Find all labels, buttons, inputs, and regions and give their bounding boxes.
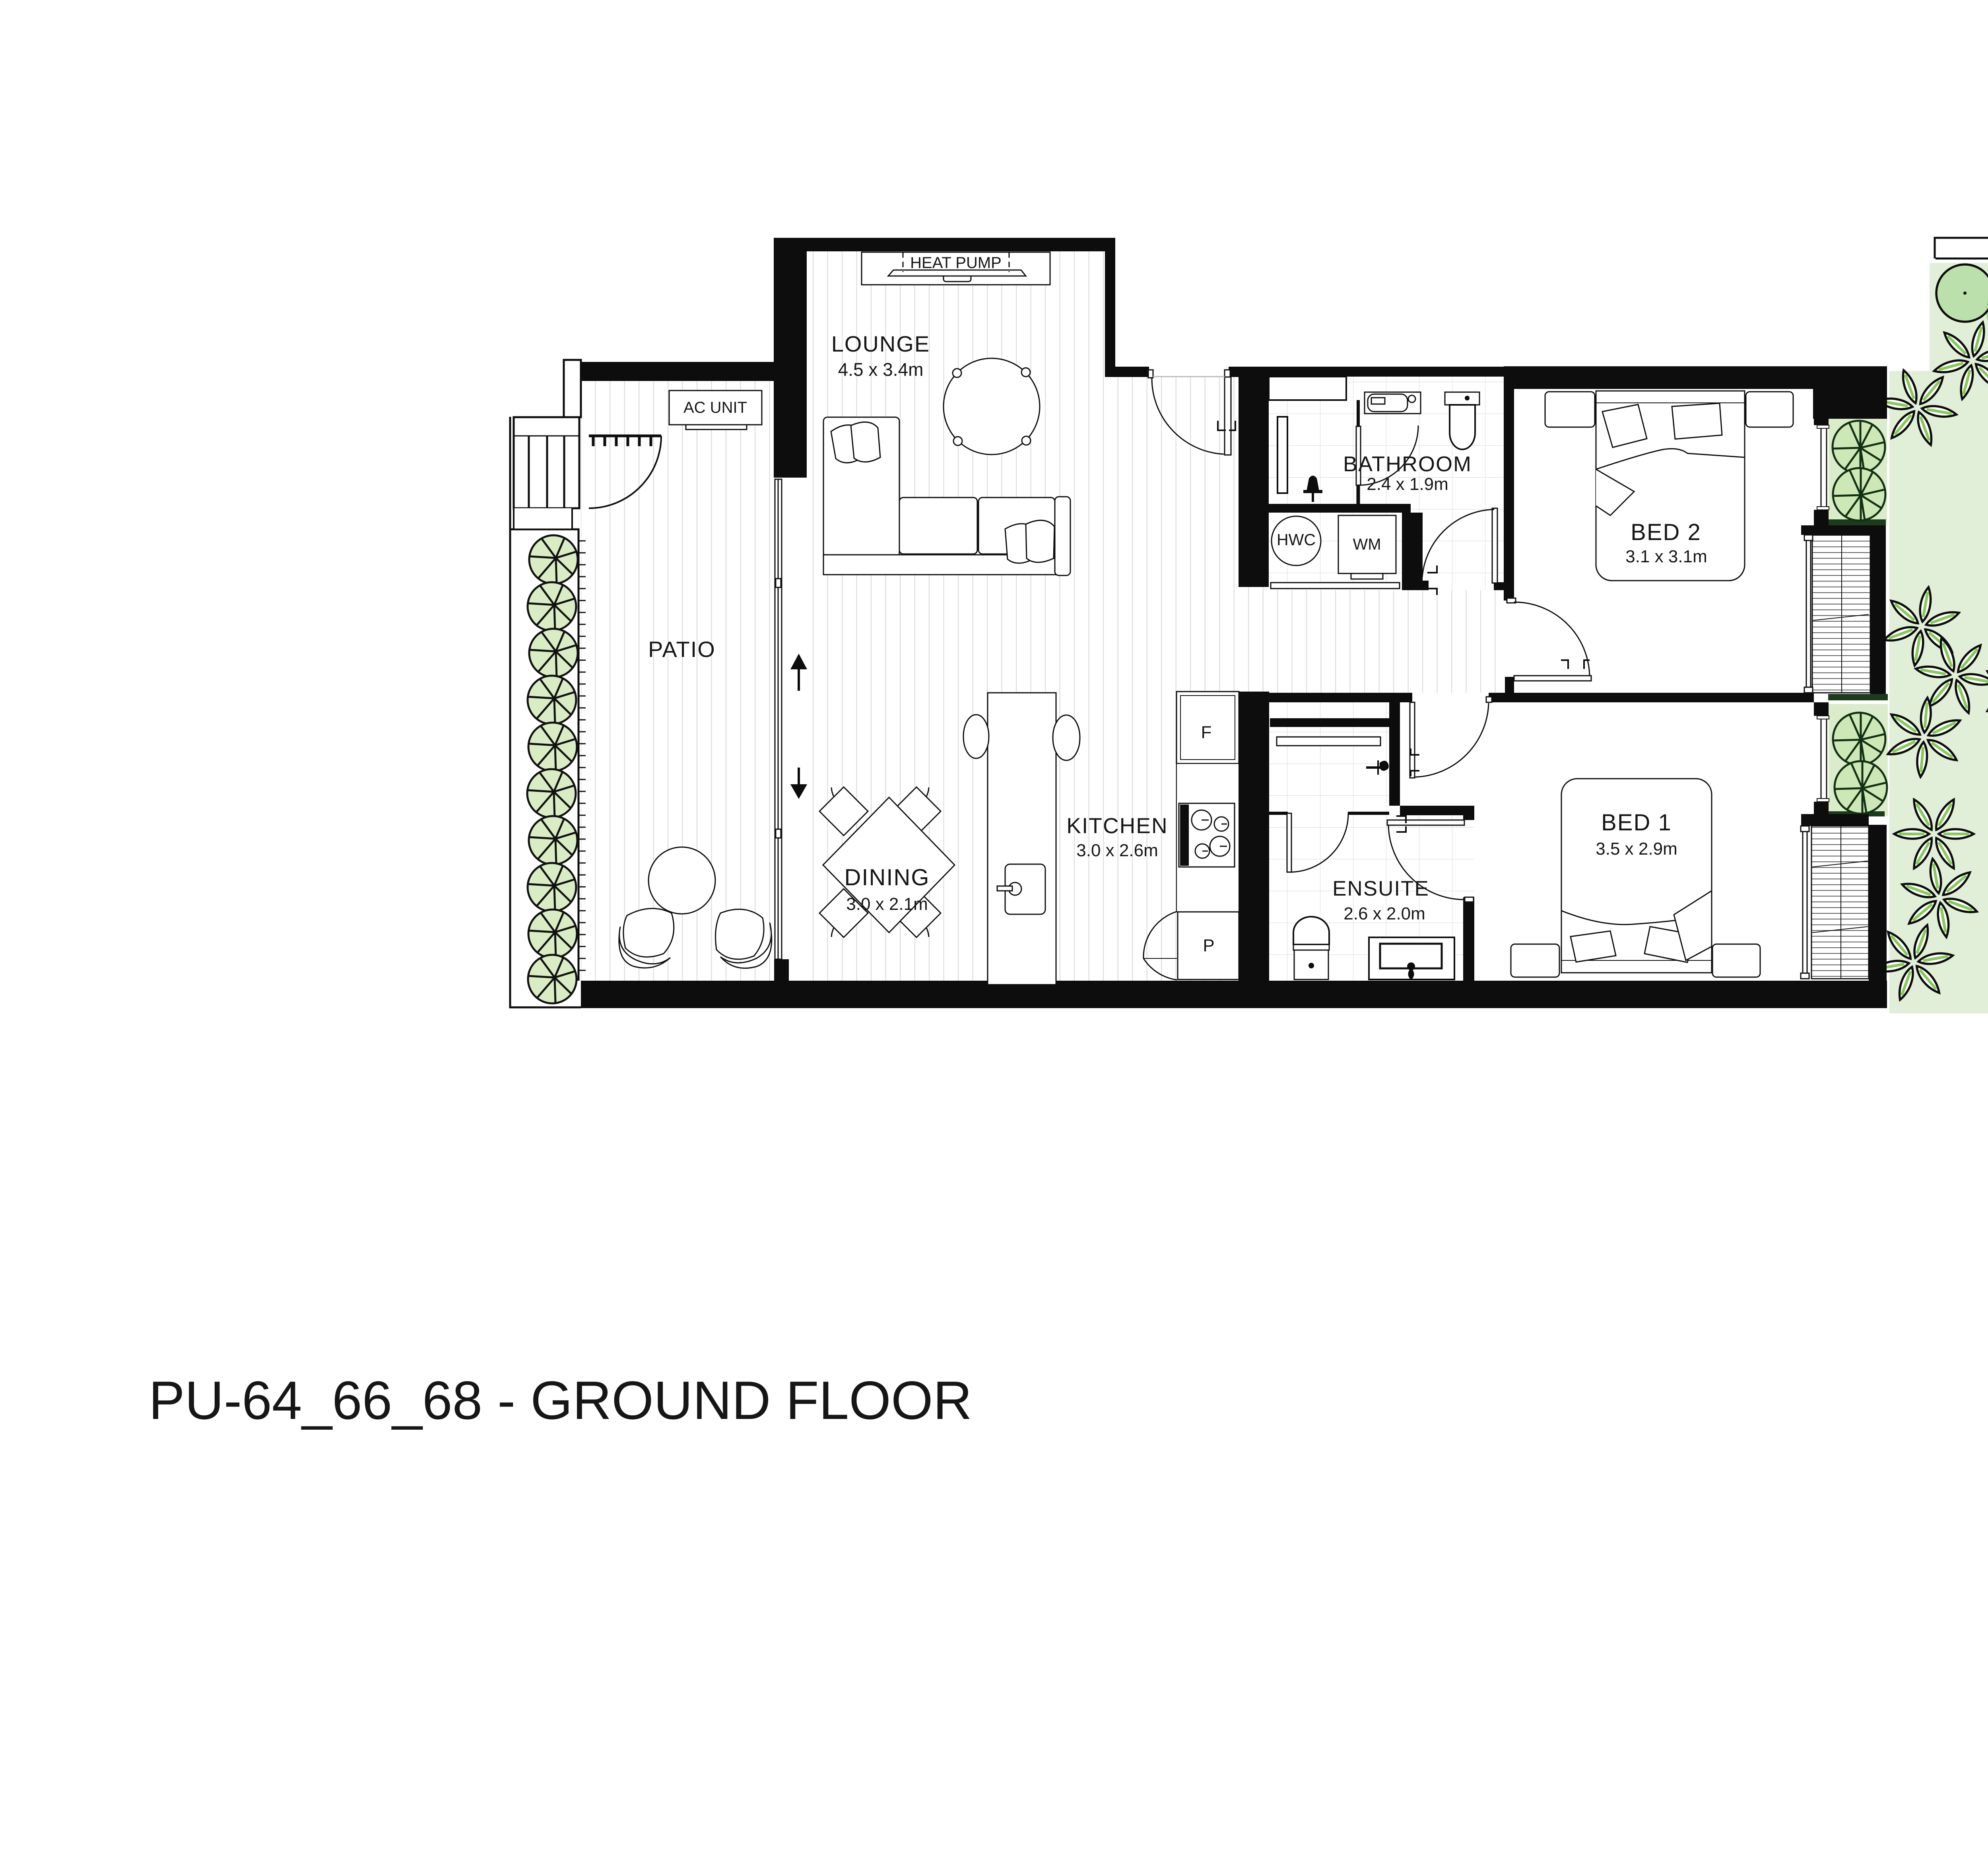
svg-text:KITCHEN: KITCHEN [1066, 813, 1168, 838]
svg-text:PU-64_66_68 - GROUND FLOOR: PU-64_66_68 - GROUND FLOOR [149, 1370, 972, 1430]
svg-text:LOUNGE: LOUNGE [831, 331, 930, 356]
svg-text:HEAT PUMP: HEAT PUMP [910, 254, 1002, 272]
svg-text:3.5 x 2.9m: 3.5 x 2.9m [1596, 839, 1677, 859]
svg-text:3.0 x 2.1m: 3.0 x 2.1m [846, 894, 928, 914]
svg-text:BATHROOM: BATHROOM [1343, 452, 1472, 476]
svg-text:ENSUITE: ENSUITE [1332, 877, 1429, 900]
svg-text:3.1 x 3.1m: 3.1 x 3.1m [1625, 547, 1707, 566]
svg-text:2.4 x 1.9m: 2.4 x 1.9m [1367, 474, 1448, 494]
svg-text:AC UNIT: AC UNIT [683, 399, 747, 416]
svg-text:DINING: DINING [845, 865, 930, 890]
svg-text:HWC: HWC [1277, 531, 1316, 549]
svg-text:2.6 x 2.0m: 2.6 x 2.0m [1343, 904, 1425, 923]
svg-text:P: P [1203, 936, 1214, 955]
svg-text:PATIO: PATIO [648, 637, 716, 662]
svg-text:BED 1: BED 1 [1601, 810, 1672, 836]
svg-text:F: F [1201, 723, 1212, 742]
svg-text:3.0 x 2.6m: 3.0 x 2.6m [1076, 841, 1158, 860]
svg-text:WM: WM [1353, 536, 1381, 553]
svg-text:BED 2: BED 2 [1631, 519, 1701, 545]
svg-text:4.5 x 3.4m: 4.5 x 3.4m [838, 359, 924, 380]
